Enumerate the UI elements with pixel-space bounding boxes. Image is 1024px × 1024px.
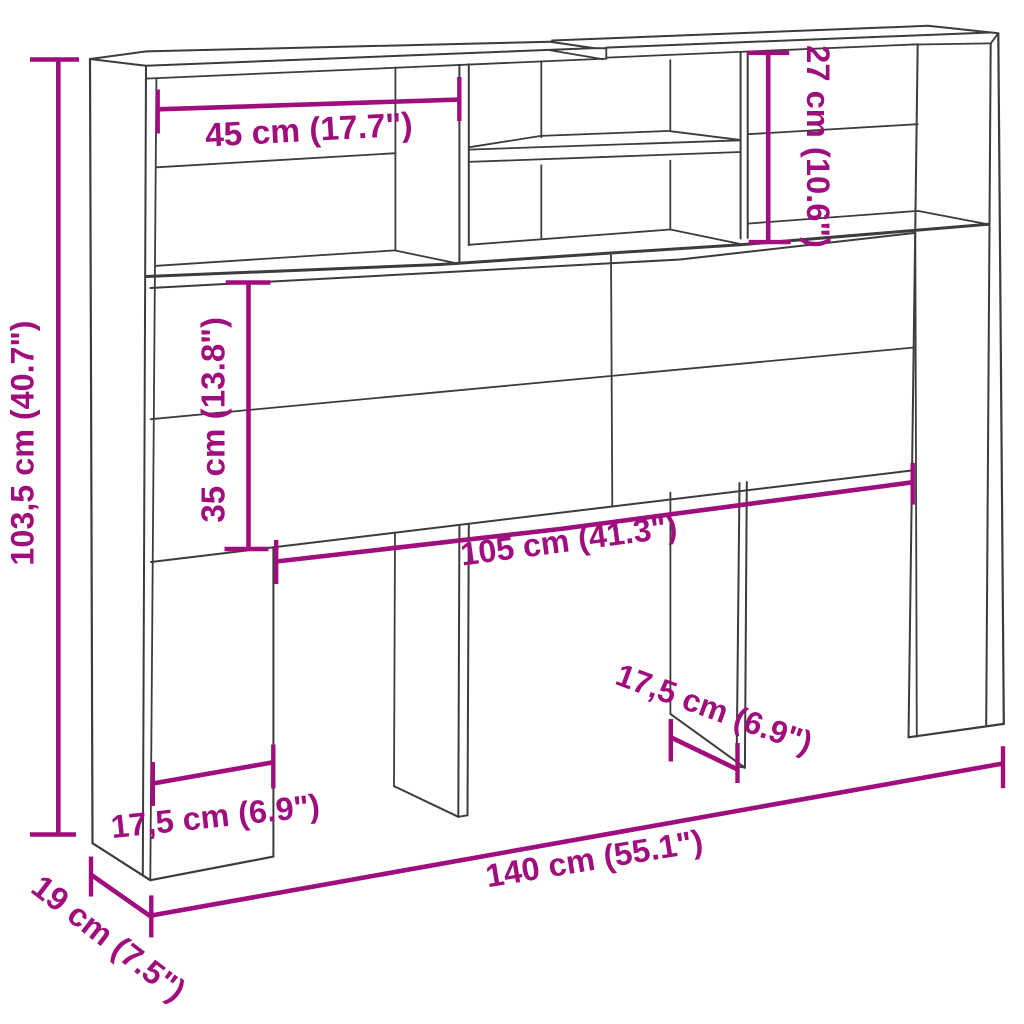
svg-text:103,5 cm (40.7"): 103,5 cm (40.7") bbox=[5, 320, 41, 565]
svg-text:27 cm (10.6"): 27 cm (10.6") bbox=[800, 45, 837, 248]
svg-text:35 cm (13.8"): 35 cm (13.8") bbox=[196, 317, 233, 523]
